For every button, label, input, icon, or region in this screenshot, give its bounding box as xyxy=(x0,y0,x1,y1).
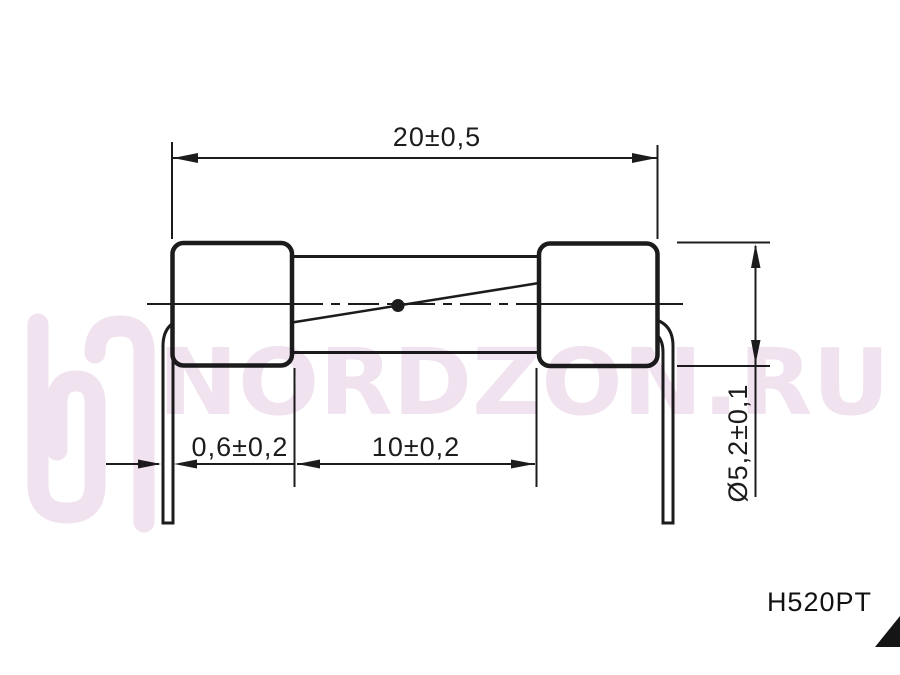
fuse-drawing-canvas: 20±0,5 0,6±0,2 10±0,2 Ø5,2±0,1 xyxy=(0,0,900,675)
dimension-total-length: 20±0,5 xyxy=(172,122,658,239)
fuse-technical-drawing-page: 20±0,5 0,6±0,2 10±0,2 Ø5,2±0,1 xyxy=(0,0,900,675)
part-number-label: H520PT xyxy=(767,587,872,617)
dimension-cap-diameter: Ø5,2±0,1 xyxy=(677,243,770,503)
arrow-right-icon xyxy=(632,153,657,163)
arrow-right-icon xyxy=(138,460,161,469)
arrow-down-icon xyxy=(751,340,761,364)
arrow-left-icon xyxy=(173,153,198,163)
dim-lead-diameter-label: 0,6±0,2 xyxy=(192,432,289,462)
corner-triangle-icon xyxy=(875,616,900,647)
dimension-lead-diameter: 0,6±0,2 xyxy=(106,432,294,469)
dim-total-length-label: 20±0,5 xyxy=(393,122,481,152)
arrow-right-icon xyxy=(511,460,535,469)
dim-body-length-label: 10±0,2 xyxy=(372,432,460,462)
fuse-element-dot xyxy=(392,299,405,312)
arrow-left-icon xyxy=(297,460,320,469)
arrow-up-icon xyxy=(751,244,761,268)
dimension-body-length: 10±0,2 xyxy=(295,368,537,487)
dim-cap-diameter-label: Ø5,2±0,1 xyxy=(723,384,753,503)
